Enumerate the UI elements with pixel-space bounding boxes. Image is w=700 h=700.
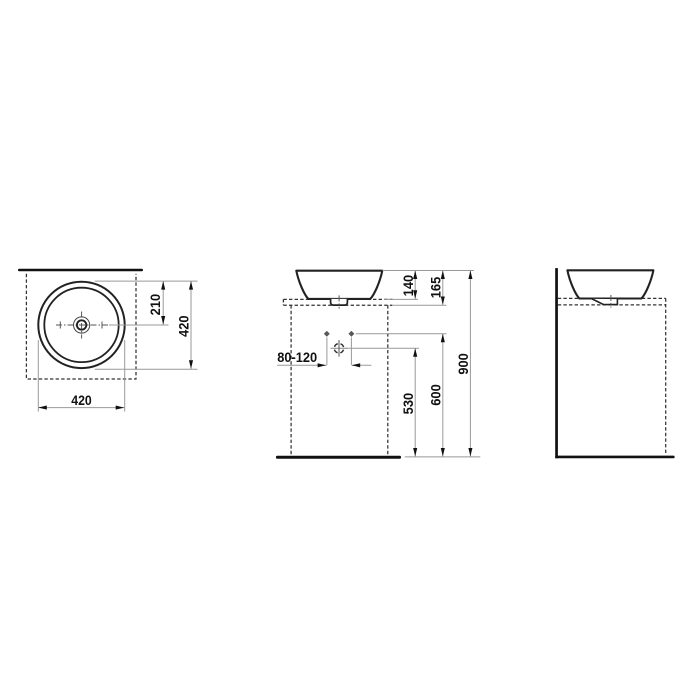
svg-text:210: 210 — [147, 294, 163, 316]
svg-text:420: 420 — [71, 392, 92, 408]
svg-text:140: 140 — [400, 275, 416, 297]
svg-text:600: 600 — [427, 384, 443, 406]
svg-text:530: 530 — [400, 393, 416, 415]
svg-text:165: 165 — [427, 277, 443, 299]
svg-text:900: 900 — [455, 353, 471, 375]
svg-text:80-120: 80-120 — [277, 350, 317, 365]
svg-text:420: 420 — [175, 315, 191, 337]
